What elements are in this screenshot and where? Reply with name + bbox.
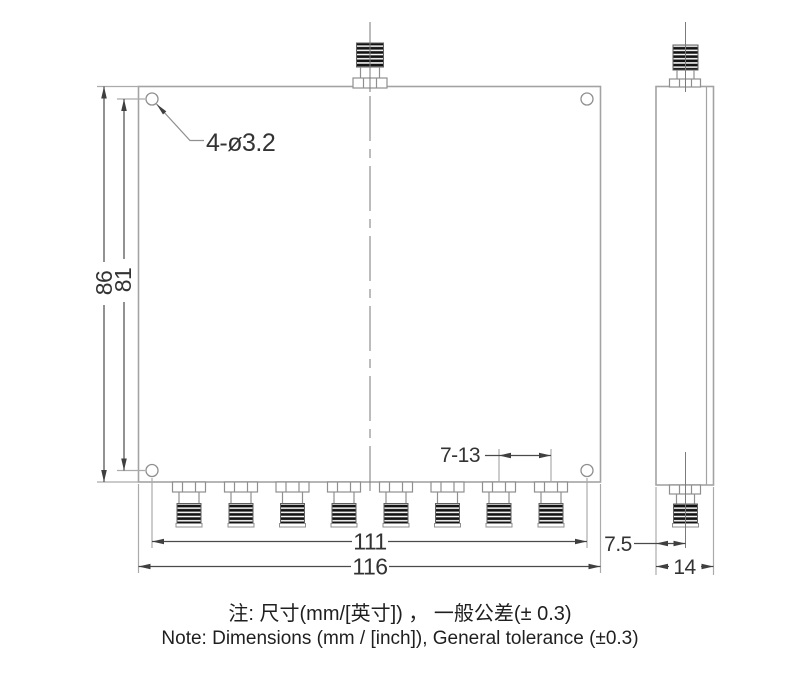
mounting-hole-top-right xyxy=(581,93,593,105)
output-connector-1 xyxy=(173,482,206,527)
front-view xyxy=(139,22,601,527)
dim-label-14: 14 xyxy=(673,556,696,579)
dim-label-111: 111 xyxy=(353,529,386,555)
note-english: Note: Dimensions (mm / [inch]), General … xyxy=(0,628,800,650)
drawing-page: 86 81 4-ø3.2 7-13 xyxy=(0,0,800,692)
output-connector-2 xyxy=(225,482,258,527)
dim-side-thickness: 14 xyxy=(656,487,714,579)
dim-label-7-5: 7.5 xyxy=(604,533,632,556)
technical-drawing: 86 81 4-ø3.2 7-13 xyxy=(0,0,800,692)
output-connector-6 xyxy=(431,482,464,527)
mounting-hole-top-left xyxy=(146,93,158,105)
dim-label-7-13: 7-13 xyxy=(440,444,480,467)
mounting-hole-bottom-left xyxy=(146,465,158,477)
output-connector-3 xyxy=(276,482,309,527)
dim-label-81: 81 xyxy=(110,268,136,293)
side-view xyxy=(656,22,714,548)
side-body-outline xyxy=(656,87,714,486)
dim-label-116: 116 xyxy=(352,554,387,580)
output-connector-5 xyxy=(380,482,413,527)
output-connector-7 xyxy=(483,482,516,527)
output-connector-4 xyxy=(328,482,361,527)
output-connector-8 xyxy=(535,482,568,527)
mounting-hole-bottom-right xyxy=(581,465,593,477)
dim-label-hole-callout: 4-ø3.2 xyxy=(206,129,275,157)
note-chinese: 注: 尺寸(mm/[英寸]) ， 一般公差(± 0.3) xyxy=(0,597,800,626)
